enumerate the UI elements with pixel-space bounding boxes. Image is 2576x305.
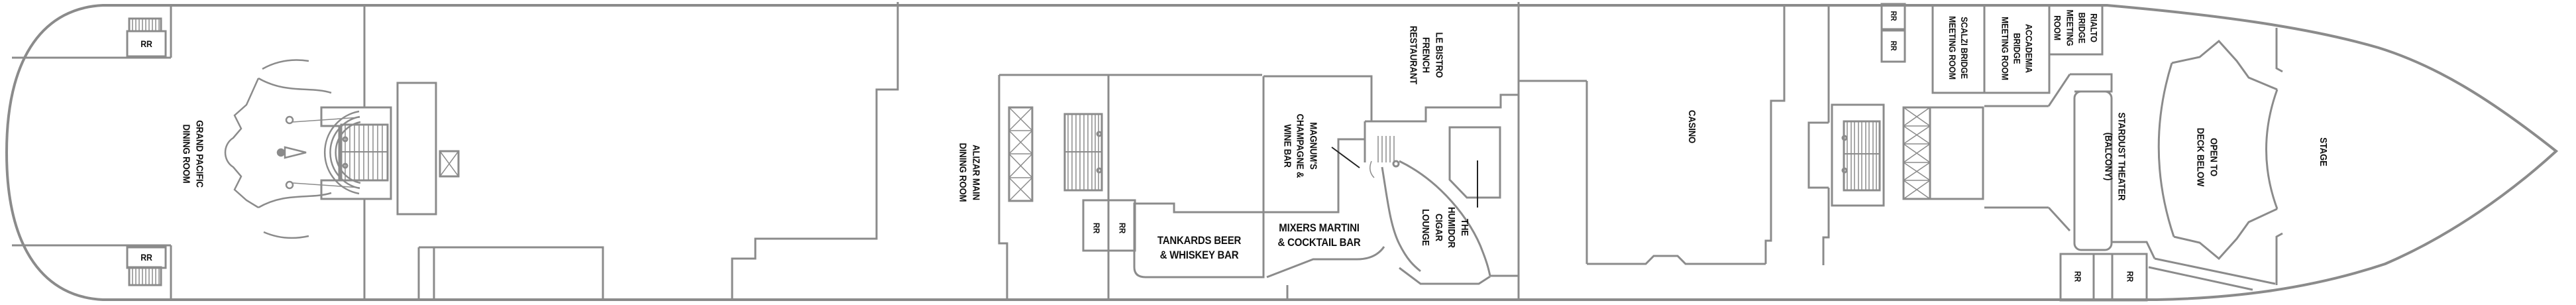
- stairs-icon: [129, 19, 161, 31]
- restroom-label: RR: [2072, 271, 2083, 282]
- galley-block: [419, 247, 603, 300]
- alizar-west-wall: [732, 2, 898, 300]
- magnums-pointer: [1332, 147, 1360, 168]
- room-label-scalzi: SCALZI BRIDGE MEETING ROOM: [1947, 16, 1970, 80]
- stairs-icon: [1065, 114, 1102, 190]
- elevator-icon: [440, 151, 458, 176]
- room-label-alizar: ALIZAR MAIN DINING ROOM: [957, 143, 983, 202]
- deck-plan: GRAND PACIFIC DINING ROOM RR RR ALIZAR M…: [0, 0, 2576, 305]
- room-label-accademia: ACCADEMIA BRIDGE MEETING ROOM: [1999, 17, 2035, 80]
- podium-icon: [278, 149, 284, 156]
- room-label-casino: CASINO: [1685, 110, 1698, 143]
- room-label-stardust: STARDUST THEATER (BALCONY): [2102, 112, 2128, 200]
- stardust-theater: [2061, 28, 2282, 300]
- stairs-icon: [129, 267, 161, 285]
- mixers-magnums-walls: [1263, 76, 1384, 300]
- lobby-box: [398, 83, 436, 214]
- lobby-box: [1930, 107, 1983, 199]
- room-label-tankards: TANKARDS BEER & WHISKEY BAR: [1157, 233, 1241, 263]
- humidor-lounge-walls: [1382, 127, 1519, 284]
- room-label-magnums: MAGNUM'S CHAMPAGNE & WINE BAR: [1281, 114, 1320, 178]
- restroom-label: RR: [140, 251, 152, 263]
- restroom-label: RR: [1888, 11, 1898, 21]
- room-label-stage: STAGE: [2316, 137, 2330, 166]
- stern-top-strip: [12, 5, 171, 58]
- humidor-room: [1450, 127, 1500, 198]
- restroom-label: RR: [1091, 223, 1102, 233]
- room-label-grand-pacific: GRAND PACIFIC DINING ROOM: [180, 120, 206, 188]
- stern-stair-tower: [321, 83, 458, 214]
- restroom-label: RR: [2124, 271, 2135, 282]
- restroom-label: RR: [140, 38, 152, 50]
- room-label-rialto: RIALTO BRIDGE MEETING ROOM: [2052, 10, 2100, 46]
- alizar-lobby: [999, 75, 1262, 300]
- room-label-mixers: MIXERS MARTINI & COCKTAIL BAR: [1278, 221, 1361, 250]
- elevator-icon: [1904, 107, 1930, 199]
- label-pointer-lines: [1332, 147, 1477, 208]
- restroom-label: RR: [1888, 41, 1898, 51]
- proscenium-arc: [2267, 90, 2278, 209]
- casino-walls: [1519, 5, 1784, 264]
- room-label-humidor: THE HUMIDOR CIGAR LOUNGE: [1419, 207, 1471, 248]
- balcony-front-arc: [2159, 63, 2174, 237]
- stairs-icon: [341, 125, 388, 180]
- stairs-icon: [1832, 105, 1884, 206]
- elevator-icon: [1009, 107, 1032, 201]
- room-label-le-bistro: LE BISTRO FRENCH RESTAURANT: [1407, 26, 1446, 84]
- stairs-icon: [1378, 136, 1399, 166]
- room-label-open-below: OPEN TO DECK BELOW: [2194, 128, 2220, 186]
- restroom-label: RR: [1116, 223, 1128, 233]
